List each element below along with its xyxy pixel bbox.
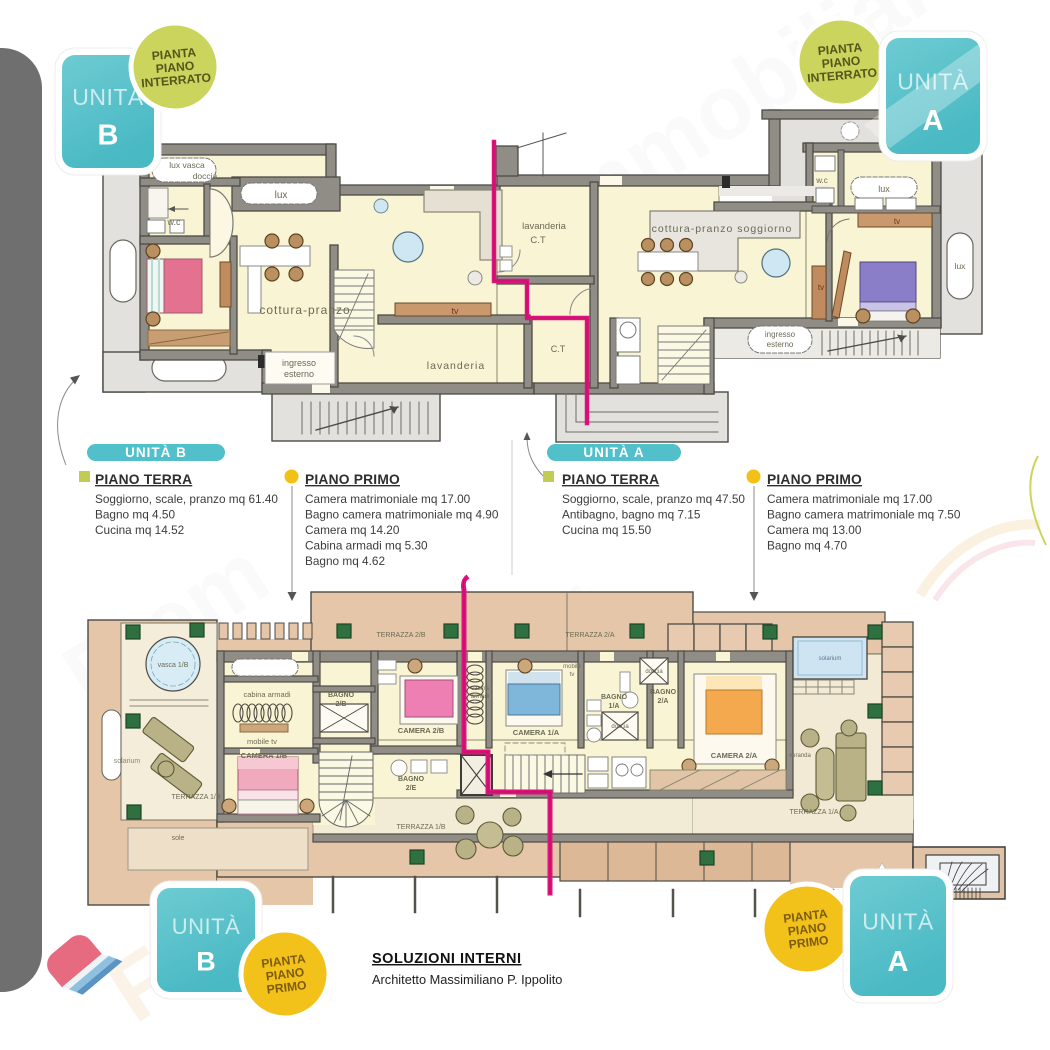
svg-text:Bagno mq 4.50: Bagno mq 4.50 — [95, 508, 175, 522]
svg-text:BAGNO: BAGNO — [601, 694, 628, 701]
svg-text:tv: tv — [818, 283, 824, 292]
svg-text:SOLUZIONI INTERNI: SOLUZIONI INTERNI — [372, 951, 521, 967]
svg-text:B: B — [98, 120, 119, 152]
svg-text:lux: lux — [878, 184, 890, 194]
svg-text:PIANO PRIMO: PIANO PRIMO — [767, 472, 862, 487]
svg-text:mobile tv: mobile tv — [247, 737, 277, 746]
svg-text:ingresso: ingresso — [765, 330, 796, 339]
svg-text:PIANO TERRA: PIANO TERRA — [562, 472, 659, 487]
svg-text:doccia: doccia — [645, 669, 663, 675]
svg-text:B: B — [196, 947, 216, 977]
svg-text:armadi: armadi — [471, 694, 489, 700]
svg-text:2/E: 2/E — [406, 785, 417, 792]
svg-text:lux vasca: lux vasca — [169, 160, 205, 170]
svg-text:sole: sole — [172, 835, 185, 842]
svg-text:ingresso: ingresso — [282, 358, 316, 368]
svg-text:TERRAZZA 1/B: TERRAZZA 1/B — [396, 824, 445, 831]
svg-text:CAMERA 1/B: CAMERA 1/B — [241, 751, 288, 760]
svg-text:1/A: 1/A — [609, 703, 620, 710]
svg-text:Camera matrimoniale mq 17.00: Camera matrimoniale mq 17.00 — [305, 492, 471, 506]
svg-text:lavanderia: lavanderia — [522, 221, 567, 232]
svg-text:UNITÀ: UNITÀ — [172, 914, 241, 939]
svg-text:cabina armadi: cabina armadi — [243, 690, 290, 699]
svg-text:TERRAZZA 1/B: TERRAZZA 1/B — [171, 794, 220, 801]
svg-text:solarium: solarium — [114, 758, 141, 765]
svg-text:BAGNO: BAGNO — [650, 689, 677, 696]
svg-text:CAMERA 2/B: CAMERA 2/B — [398, 726, 445, 735]
svg-text:UNITÀ: UNITÀ — [862, 908, 934, 934]
svg-text:doccia: doccia — [193, 171, 218, 181]
svg-text:TERRAZZA 2/B: TERRAZZA 2/B — [376, 632, 425, 639]
svg-text:Camera matrimoniale mq 17.00: Camera matrimoniale mq 17.00 — [767, 492, 933, 506]
svg-text:cabina: cabina — [471, 686, 489, 692]
svg-text:solarium: solarium — [819, 656, 842, 662]
svg-text:CAMERA 2/A: CAMERA 2/A — [711, 751, 758, 760]
svg-text:tv: tv — [451, 306, 459, 316]
svg-text:Soggiorno, scale, pranzo mq 47: Soggiorno, scale, pranzo mq 47.50 — [562, 492, 745, 506]
svg-text:lux: lux — [955, 261, 967, 271]
svg-text:PIANO PRIMO: PIANO PRIMO — [305, 472, 400, 487]
svg-text:mobile: mobile — [563, 664, 581, 670]
svg-text:Antibagno, bagno mq 7.15: Antibagno, bagno mq 7.15 — [562, 508, 701, 522]
svg-text:esterno: esterno — [767, 340, 794, 349]
svg-text:Architetto Massimiliano P. Ipp: Architetto Massimiliano P. Ippolito — [372, 972, 562, 987]
svg-text:tv: tv — [894, 217, 900, 226]
svg-text:lux: lux — [275, 190, 288, 201]
svg-text:BAGNO: BAGNO — [398, 776, 425, 783]
svg-text:BAGNO: BAGNO — [328, 692, 355, 699]
svg-text:cottura-pranzo: cottura-pranzo — [259, 303, 350, 317]
svg-text:w.c: w.c — [166, 217, 181, 227]
svg-text:C.T: C.T — [551, 344, 566, 354]
svg-text:PIANO TERRA: PIANO TERRA — [95, 472, 192, 487]
svg-text:C.T: C.T — [530, 235, 546, 246]
svg-text:veranda: veranda — [789, 753, 811, 759]
svg-text:2/B: 2/B — [336, 701, 347, 708]
svg-text:TERRAZZA 1/A: TERRAZZA 1/A — [789, 809, 838, 816]
svg-text:UNITÀ: UNITÀ — [72, 84, 144, 110]
svg-text:Cabina armadi mq 5.30: Cabina armadi mq 5.30 — [305, 539, 428, 553]
svg-text:Camera mq 14.20: Camera mq 14.20 — [305, 523, 400, 537]
svg-text:Camera mq 13.00: Camera mq 13.00 — [767, 523, 862, 537]
svg-text:cottura-pranzo soggiorno: cottura-pranzo soggiorno — [652, 223, 793, 235]
svg-text:UNITÀ B: UNITÀ B — [125, 445, 187, 460]
svg-text:TERRAZZA 2/A: TERRAZZA 2/A — [565, 632, 614, 639]
svg-text:CAMERA 1/A: CAMERA 1/A — [513, 728, 560, 737]
svg-text:doccia: doccia — [611, 724, 629, 730]
svg-text:Soggiorno, scale, pranzo mq 61: Soggiorno, scale, pranzo mq 61.40 — [95, 492, 278, 506]
svg-text:2/A: 2/A — [658, 698, 669, 705]
svg-text:Bagno camera matrimoniale mq 4: Bagno camera matrimoniale mq 4.90 — [305, 508, 499, 522]
svg-text:esterno: esterno — [284, 369, 314, 379]
svg-text:Bagno mq 4.62: Bagno mq 4.62 — [305, 554, 385, 568]
svg-text:lavanderia: lavanderia — [427, 360, 485, 372]
svg-text:Cucina mq 15.50: Cucina mq 15.50 — [562, 523, 652, 537]
svg-text:A: A — [888, 946, 909, 978]
svg-text:Bagno camera matrimoniale mq 7: Bagno camera matrimoniale mq 7.50 — [767, 508, 961, 522]
svg-text:vasca 1/B: vasca 1/B — [158, 662, 189, 669]
svg-text:w.c: w.c — [815, 176, 828, 185]
svg-text:UNITÀ A: UNITÀ A — [583, 445, 644, 460]
svg-text:Bagno mq 4.70: Bagno mq 4.70 — [767, 539, 847, 553]
svg-text:tv: tv — [570, 672, 575, 678]
svg-text:Cucina mq 14.52: Cucina mq 14.52 — [95, 523, 184, 537]
